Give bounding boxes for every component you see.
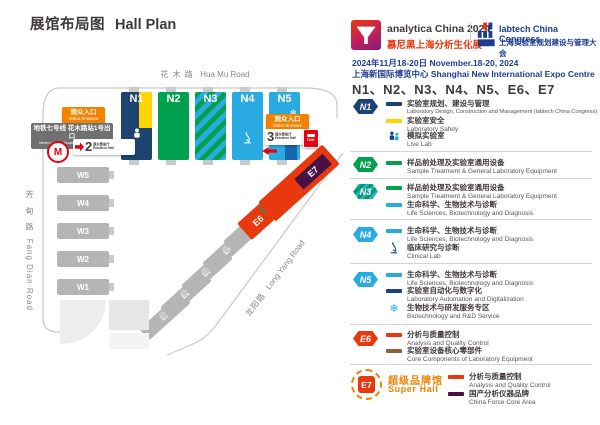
- row-zh: 实验室规划、建设与管理: [407, 99, 597, 109]
- marker-green-bar: [386, 161, 402, 165]
- hall-n3: N3: [195, 92, 226, 160]
- gate-3-text: 观众登录厅 Entrance Hall: [275, 133, 297, 141]
- marker-navy-bar: [386, 289, 402, 293]
- marker-blue-bar: [386, 203, 402, 207]
- gate-2-number: 2: [85, 140, 92, 153]
- legend-divider: [350, 219, 592, 220]
- badge-n1-label: N1: [360, 102, 372, 112]
- hall-w1: W1: [57, 279, 109, 295]
- hall-n5-label: N5: [269, 92, 300, 107]
- taxi-label: TAXI: [307, 139, 315, 143]
- legend-row: 实验室自动化与数字化Laboratory Automation and Digi…: [386, 286, 524, 305]
- marker-purple-bar: [448, 392, 464, 396]
- taxi-car-glyph: [307, 134, 315, 137]
- gate-2-arrow-icon: [75, 142, 84, 151]
- badge-e7-super-hall: E7: [351, 369, 382, 400]
- badge-n5-label: N5: [360, 275, 372, 285]
- row-en: Sample Treatment & General Laboratory Eq…: [407, 168, 557, 176]
- snowflake-icon: ❄: [386, 302, 402, 315]
- row-zh: 生命科学、生物技术与诊断: [407, 200, 533, 210]
- gate-3-number: 3: [267, 130, 274, 143]
- legend-row: 国产分析仪器品牌China Force Core Area: [448, 389, 535, 408]
- road-huamu-en: Hua Mu Road: [200, 70, 249, 79]
- hall-w4: W4: [57, 195, 109, 211]
- hall-e7-label: E7: [306, 164, 321, 179]
- hall-w2: W2: [57, 251, 109, 267]
- marker-navy-bar: [386, 102, 402, 106]
- live-lab-icon: [386, 130, 402, 143]
- hall-n2: N2: [158, 92, 189, 160]
- road-fangdian: 芳 甸 路 Fang Dian Road: [24, 190, 35, 311]
- hall-n4-label: N4: [232, 92, 263, 107]
- legend-row: 样品前处理及实验室通用设备Sample Treatment & General …: [386, 158, 557, 177]
- marker-brown-bar: [386, 349, 402, 353]
- row-zh: 国产分析仪器品牌: [469, 389, 535, 399]
- hall-w2-label: W2: [77, 255, 89, 264]
- row-en: Clinical Lab: [407, 253, 460, 261]
- visitor-entrance-left-en: Visitor Entrance: [65, 117, 102, 122]
- gate-2-text: 观众登录厅 Entrance Hall: [93, 143, 115, 151]
- badge-e7-label: E7: [361, 380, 371, 390]
- marker-yellow-bar: [386, 119, 402, 123]
- taxi-icon: TAXI: [303, 129, 319, 148]
- metro-icon: M: [47, 141, 69, 163]
- row-en: Live Lab: [407, 141, 445, 149]
- entrance-gate-2: 2 观众登录厅 Entrance Hall: [73, 139, 135, 155]
- row-zh: 样品前处理及实验室通用设备: [407, 158, 557, 168]
- hall-w1-label: W1: [77, 283, 89, 292]
- row-zh: 样品前处理及实验室通用设备: [407, 183, 557, 193]
- legend-row: 生命科学、生物技术与诊断Life Sciences, Biotechnology…: [386, 200, 533, 219]
- row-en: Biotechnology and R&D Service: [407, 313, 500, 321]
- gate-3-en: Entrance Hall: [275, 137, 297, 141]
- metro-icon-letter: M: [54, 147, 62, 158]
- hall-n1-label: N1: [121, 92, 152, 107]
- row-zh: 模拟实验室: [407, 131, 445, 141]
- hall-n4: N4: [232, 92, 263, 160]
- marker-blue-bar: [386, 273, 402, 277]
- badge-n3-label: N3: [360, 187, 372, 197]
- row-en: Life Sciences, Biotechnology and Diagnos…: [407, 210, 533, 218]
- visitor-entrance-left: 观众入口 Visitor Entrance: [62, 107, 105, 124]
- badge-n2-label: N2: [360, 160, 372, 170]
- hall-w3: W3: [57, 223, 109, 239]
- legend-divider: [350, 324, 592, 325]
- hall-n3-label: N3: [195, 92, 226, 107]
- hall-plan-page: 展馆布局图Hall Plan analytica China 2024 慕尼黑上…: [0, 0, 600, 425]
- legend-divider: [350, 364, 592, 365]
- row-zh: 分析与质量控制: [407, 330, 489, 340]
- marker-green-bar: [386, 186, 402, 190]
- hall-w5-label: W5: [77, 171, 89, 180]
- badge-n4-label: N4: [360, 230, 372, 240]
- legend-divider: [350, 151, 592, 152]
- legend-row: 生命科学、生物技术与诊断Life Sciences, Biotechnology…: [386, 226, 533, 245]
- road-fangdian-en: Fang Dian Road: [25, 239, 34, 311]
- super-hall-en: Super Hall: [388, 384, 439, 394]
- row-zh: 实验室安全: [407, 116, 458, 126]
- row-zh: 生命科学、生物技术与诊断: [407, 270, 533, 280]
- gate-2-en: Entrance Hall: [93, 147, 115, 151]
- road-huamu: 花 木 路 Hua Mu Road: [120, 69, 290, 80]
- legend-row: 实验室设备核心零部件Core Components of Laboratory …: [386, 346, 533, 365]
- microscope-icon: [242, 132, 253, 145]
- row-zh: 生命科学、生物技术与诊断: [407, 226, 533, 236]
- row-en: China Force Core Area: [469, 399, 535, 407]
- row-zh: 临床研究与诊断: [407, 243, 460, 253]
- row-zh: 分析与质量控制: [469, 372, 551, 382]
- hall-w4-label: W4: [77, 199, 89, 208]
- row-zh: 生物技术与研发服务专区: [407, 303, 500, 313]
- legend-row: ❄ 生物技术与研发服务专区Biotechnology and R&D Servi…: [386, 303, 500, 322]
- marker-red-bar: [386, 333, 402, 337]
- road-fangdian-zh: 芳 甸 路: [25, 190, 34, 233]
- badge-e6-label: E6: [360, 334, 371, 344]
- marker-blue-bar: [386, 229, 402, 233]
- legend-row: 分析与质量控制Analysis and Quality Control: [448, 372, 551, 391]
- marker-red-bar: [448, 375, 464, 379]
- legend-divider: [350, 263, 592, 264]
- hall-n2-label: N2: [158, 92, 189, 107]
- hall-w5: W5: [57, 167, 109, 183]
- hall-e6-label: E6: [251, 213, 266, 228]
- snowflake-glyph: ❄: [389, 302, 398, 315]
- legend-row: 实验室规划、建设与管理Laboratory Design, Constructi…: [386, 99, 597, 117]
- row-zh: 实验室设备核心零部件: [407, 346, 533, 356]
- microscope-icon: [386, 242, 402, 255]
- plaza-block-2: [109, 333, 149, 349]
- hall-w3-label: W3: [77, 227, 89, 236]
- legend-row: 临床研究与诊断Clinical Lab: [386, 243, 460, 262]
- plaza-block-1: [109, 300, 149, 330]
- row-zh: 实验室自动化与数字化: [407, 286, 524, 296]
- legend-row: 样品前处理及实验室通用设备Sample Treatment & General …: [386, 183, 557, 202]
- legend-row: 模拟实验室Live Lab: [386, 131, 445, 150]
- road-huamu-zh: 花 木 路: [160, 70, 193, 79]
- legend-divider: [350, 178, 592, 179]
